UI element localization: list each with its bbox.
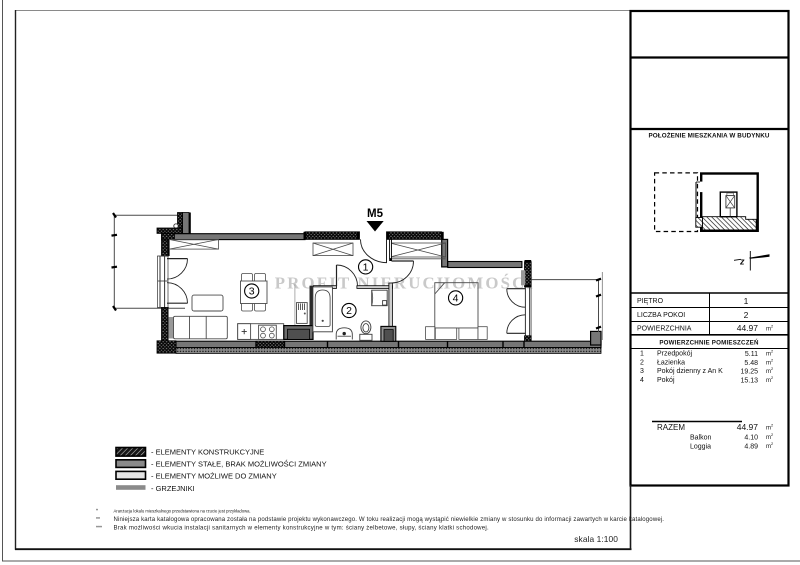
svg-text:- ELEMENTY MOŻLIWE DO ZMIANY: - ELEMENTY MOŻLIWE DO ZMIANY: [151, 472, 277, 481]
svg-text:44.97: 44.97: [737, 422, 759, 432]
svg-text:Loggia: Loggia: [690, 444, 711, 451]
svg-text:LICZBA POKOI: LICZBA POKOI: [637, 312, 685, 319]
svg-text:2: 2: [640, 360, 644, 367]
svg-text:RAZEM: RAZEM: [657, 423, 685, 432]
svg-text:Brak możliwości wkucia instala: Brak możliwości wkucia instalacji sanita…: [114, 526, 490, 532]
svg-text:POWIERZCHNIE POMIESZCZEŃ: POWIERZCHNIE POMIESZCZEŃ: [659, 339, 759, 347]
svg-text:POWIERZCHNIA: POWIERZCHNIA: [637, 326, 692, 333]
svg-text:15.13: 15.13: [740, 378, 758, 385]
svg-text:Pokój dzienny z An K: Pokój dzienny z An K: [657, 368, 723, 375]
svg-text:3: 3: [640, 368, 644, 375]
svg-text:skala 1:100: skala 1:100: [574, 534, 618, 544]
svg-text:44.97: 44.97: [737, 323, 759, 333]
svg-text:4: 4: [453, 293, 459, 305]
svg-text:z: z: [739, 257, 745, 267]
svg-text:- ELEMENTY STAŁE, BRAK MOŻLIWO: - ELEMENTY STAŁE, BRAK MOŻLIWOŚCI ZMIANY: [151, 460, 327, 469]
svg-text:- GRZEJNIKI: - GRZEJNIKI: [151, 484, 195, 493]
svg-text:PIĘTRO: PIĘTRO: [637, 298, 664, 305]
svg-text:Przedpokój: Przedpokój: [657, 351, 692, 358]
svg-text:Aranżacja lokalu mieszkalnego: Aranżacja lokalu mieszkalnego przedstawi…: [114, 509, 251, 514]
svg-text:4: 4: [640, 377, 644, 384]
svg-text:2: 2: [346, 305, 352, 317]
svg-text:*: *: [96, 509, 98, 515]
svg-text:Łazienka: Łazienka: [657, 360, 685, 367]
svg-text:1: 1: [744, 296, 749, 306]
svg-text:**: **: [96, 517, 100, 523]
svg-text:POŁOŻENIE MIESZKANIA W BUDYN: POŁOŻENIE MIESZKANIA W BUDYNKU: [648, 131, 769, 139]
svg-text:Balkon: Balkon: [690, 435, 712, 442]
svg-text:1: 1: [640, 351, 644, 358]
svg-text:Niniejsza karta katalogowa opr: Niniejsza karta katalogowa opracowana zo…: [114, 517, 665, 523]
svg-text:5.48: 5.48: [744, 360, 758, 367]
svg-text:4.10: 4.10: [744, 435, 758, 442]
svg-text:Pokój: Pokój: [657, 377, 675, 384]
svg-text:5.11: 5.11: [745, 351, 758, 358]
svg-text:2: 2: [744, 310, 749, 320]
svg-text:3: 3: [249, 286, 255, 298]
svg-text:1: 1: [363, 262, 369, 274]
svg-text:- ELEMENTY KONSTRUKCYJNE: - ELEMENTY KONSTRUKCYJNE: [151, 448, 264, 457]
svg-text:***: ***: [96, 526, 102, 532]
svg-text:19.25: 19.25: [740, 369, 758, 376]
svg-text:M5: M5: [367, 208, 384, 220]
svg-text:4.89: 4.89: [744, 444, 758, 451]
